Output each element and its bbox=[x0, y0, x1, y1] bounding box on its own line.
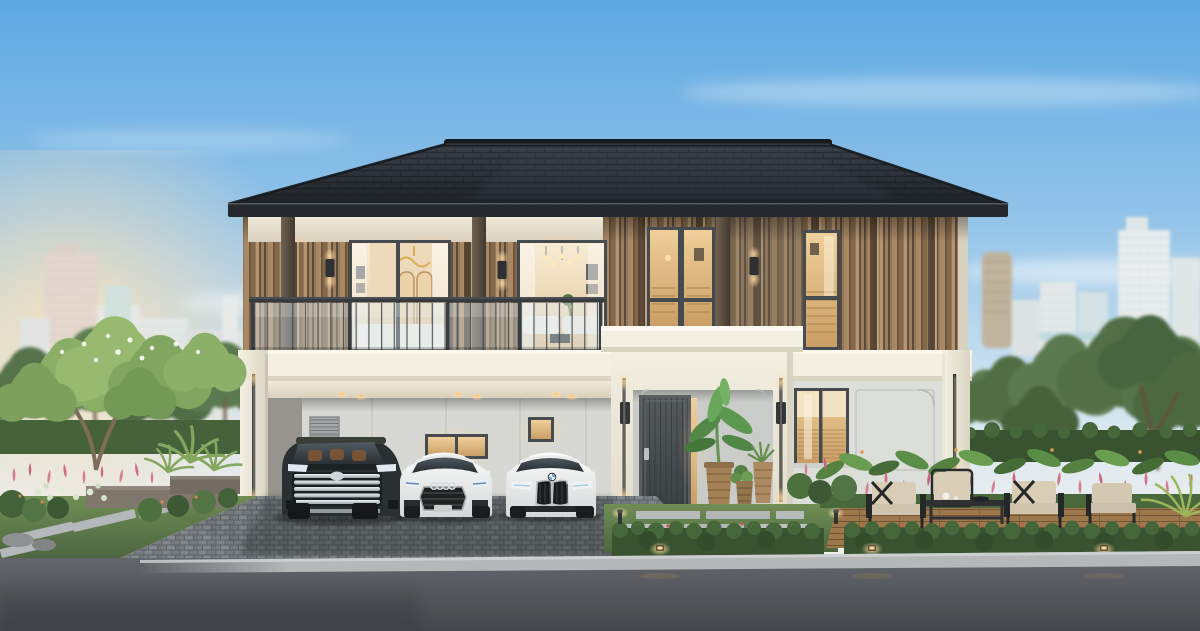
architectural-rendering bbox=[0, 0, 1200, 631]
atmosphere-overlay bbox=[0, 0, 1200, 631]
